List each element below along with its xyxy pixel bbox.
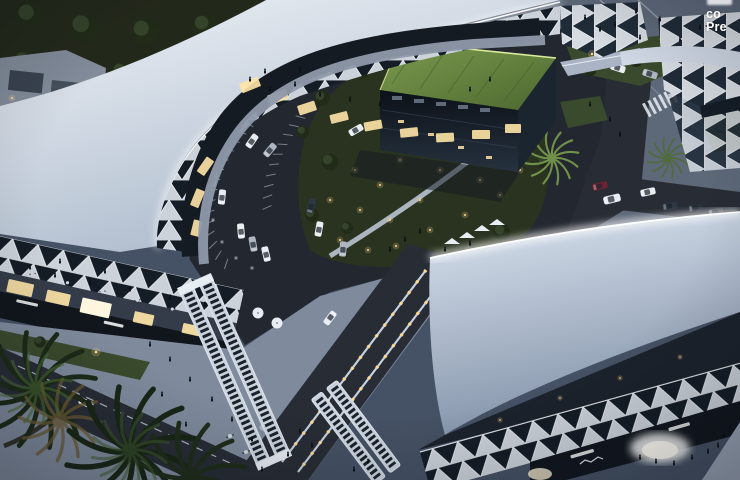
mall-aerial-rendering (0, 0, 740, 480)
watermark-clipped-line (707, 0, 732, 5)
watermark-caption: co Pre (706, 0, 740, 34)
watermark-line-3: Pre (706, 21, 740, 34)
vignette-overlay (0, 0, 740, 480)
